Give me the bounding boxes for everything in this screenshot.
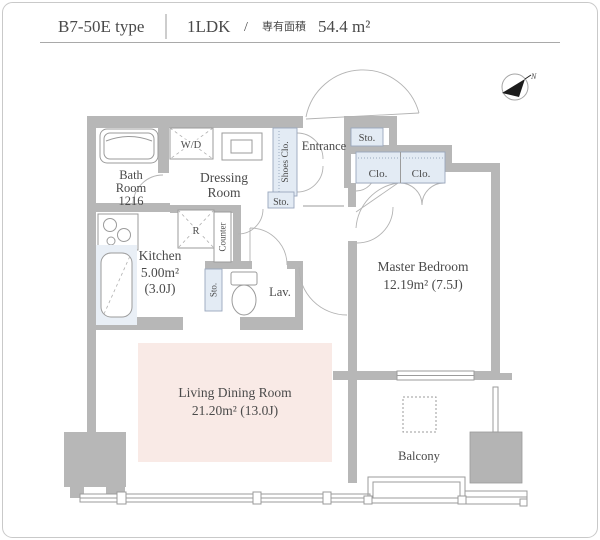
- lavatory-door-arc: [250, 228, 287, 265]
- floorplan-page: B7-50E type 1LDK / 専有面積 54.4 m² N: [0, 0, 600, 540]
- svg-text:Dressing: Dressing: [200, 170, 248, 185]
- svg-text:Kitchen: Kitchen: [139, 248, 182, 263]
- svg-text:5.00m²: 5.00m²: [141, 265, 179, 280]
- type-label: B7-50E type: [58, 17, 144, 36]
- shoes-closet-label: Shoes Clo.: [281, 141, 291, 182]
- north-label: N: [530, 72, 537, 81]
- svg-text:(3.0J): (3.0J): [144, 281, 175, 296]
- svg-text:Master Bedroom: Master Bedroom: [377, 259, 469, 274]
- stove-icon: [98, 214, 138, 250]
- svg-text:Room: Room: [116, 181, 147, 195]
- svg-text:21.20m² (13.0J): 21.20m² (13.0J): [192, 403, 278, 418]
- bedroom-label: Master Bedroom 12.19m² (7.5J): [377, 259, 469, 292]
- wd-label: W/D: [181, 140, 202, 151]
- entrance-label: Entrance: [302, 139, 347, 153]
- compass-icon: N: [502, 72, 537, 100]
- shoes-closet-door-arc: [297, 166, 323, 192]
- entrance-door-arc: [306, 70, 419, 117]
- balcony-pillar: [470, 432, 522, 483]
- refrigerator-label: R: [192, 226, 199, 237]
- bedroom-door-arc: [357, 207, 393, 243]
- ac-unit-outline: [403, 397, 436, 432]
- svg-text:1216: 1216: [119, 194, 144, 208]
- vanity-icon: [222, 133, 262, 160]
- hall-storage-label: Sto.: [273, 197, 289, 208]
- floorplan-canvas: B7-50E type 1LDK / 専有面積 54.4 m² N: [0, 0, 600, 540]
- header: B7-50E type 1LDK / 専有面積 54.4 m²: [40, 14, 560, 43]
- svg-text:Room: Room: [207, 185, 241, 200]
- face-lines: [303, 183, 445, 206]
- lavatory-label: Lav.: [269, 285, 291, 299]
- balcony-railing: [368, 477, 465, 503]
- area-caption: 専有面積: [262, 19, 306, 33]
- balcony-label: Balcony: [398, 449, 440, 463]
- layout-label: 1LDK: [187, 17, 231, 36]
- closet-left-label: Clo.: [369, 168, 388, 180]
- dressing-door-arc: [238, 209, 263, 234]
- bath-room-label: Bath Room 1216: [116, 168, 147, 208]
- kitchen-sink-icon: [96, 245, 137, 325]
- toilet-icon: [231, 272, 257, 315]
- svg-text:Living Dining Room: Living Dining Room: [178, 385, 292, 400]
- living-door-arc: [299, 267, 347, 315]
- top-storage-label: Sto.: [359, 133, 376, 144]
- bathtub-icon: [100, 129, 158, 163]
- balcony-partition: [493, 387, 498, 432]
- dressing-room-label: Dressing Room: [200, 170, 248, 200]
- closet-door-arc: [400, 183, 422, 205]
- svg-text:Bath: Bath: [119, 168, 143, 182]
- svg-text:12.19m² (7.5J): 12.19m² (7.5J): [383, 277, 462, 292]
- north-arrow-icon: [502, 79, 525, 97]
- closet-door-arc: [422, 183, 444, 205]
- lav-storage-label: Sto.: [209, 283, 219, 297]
- kitchen-label: Kitchen 5.00m² (3.0J): [139, 248, 182, 296]
- area-value: 54.4 m²: [318, 17, 370, 36]
- counter-label: Counter: [218, 223, 228, 252]
- header-slash: /: [244, 20, 248, 35]
- closet-right-label: Clo.: [412, 168, 431, 180]
